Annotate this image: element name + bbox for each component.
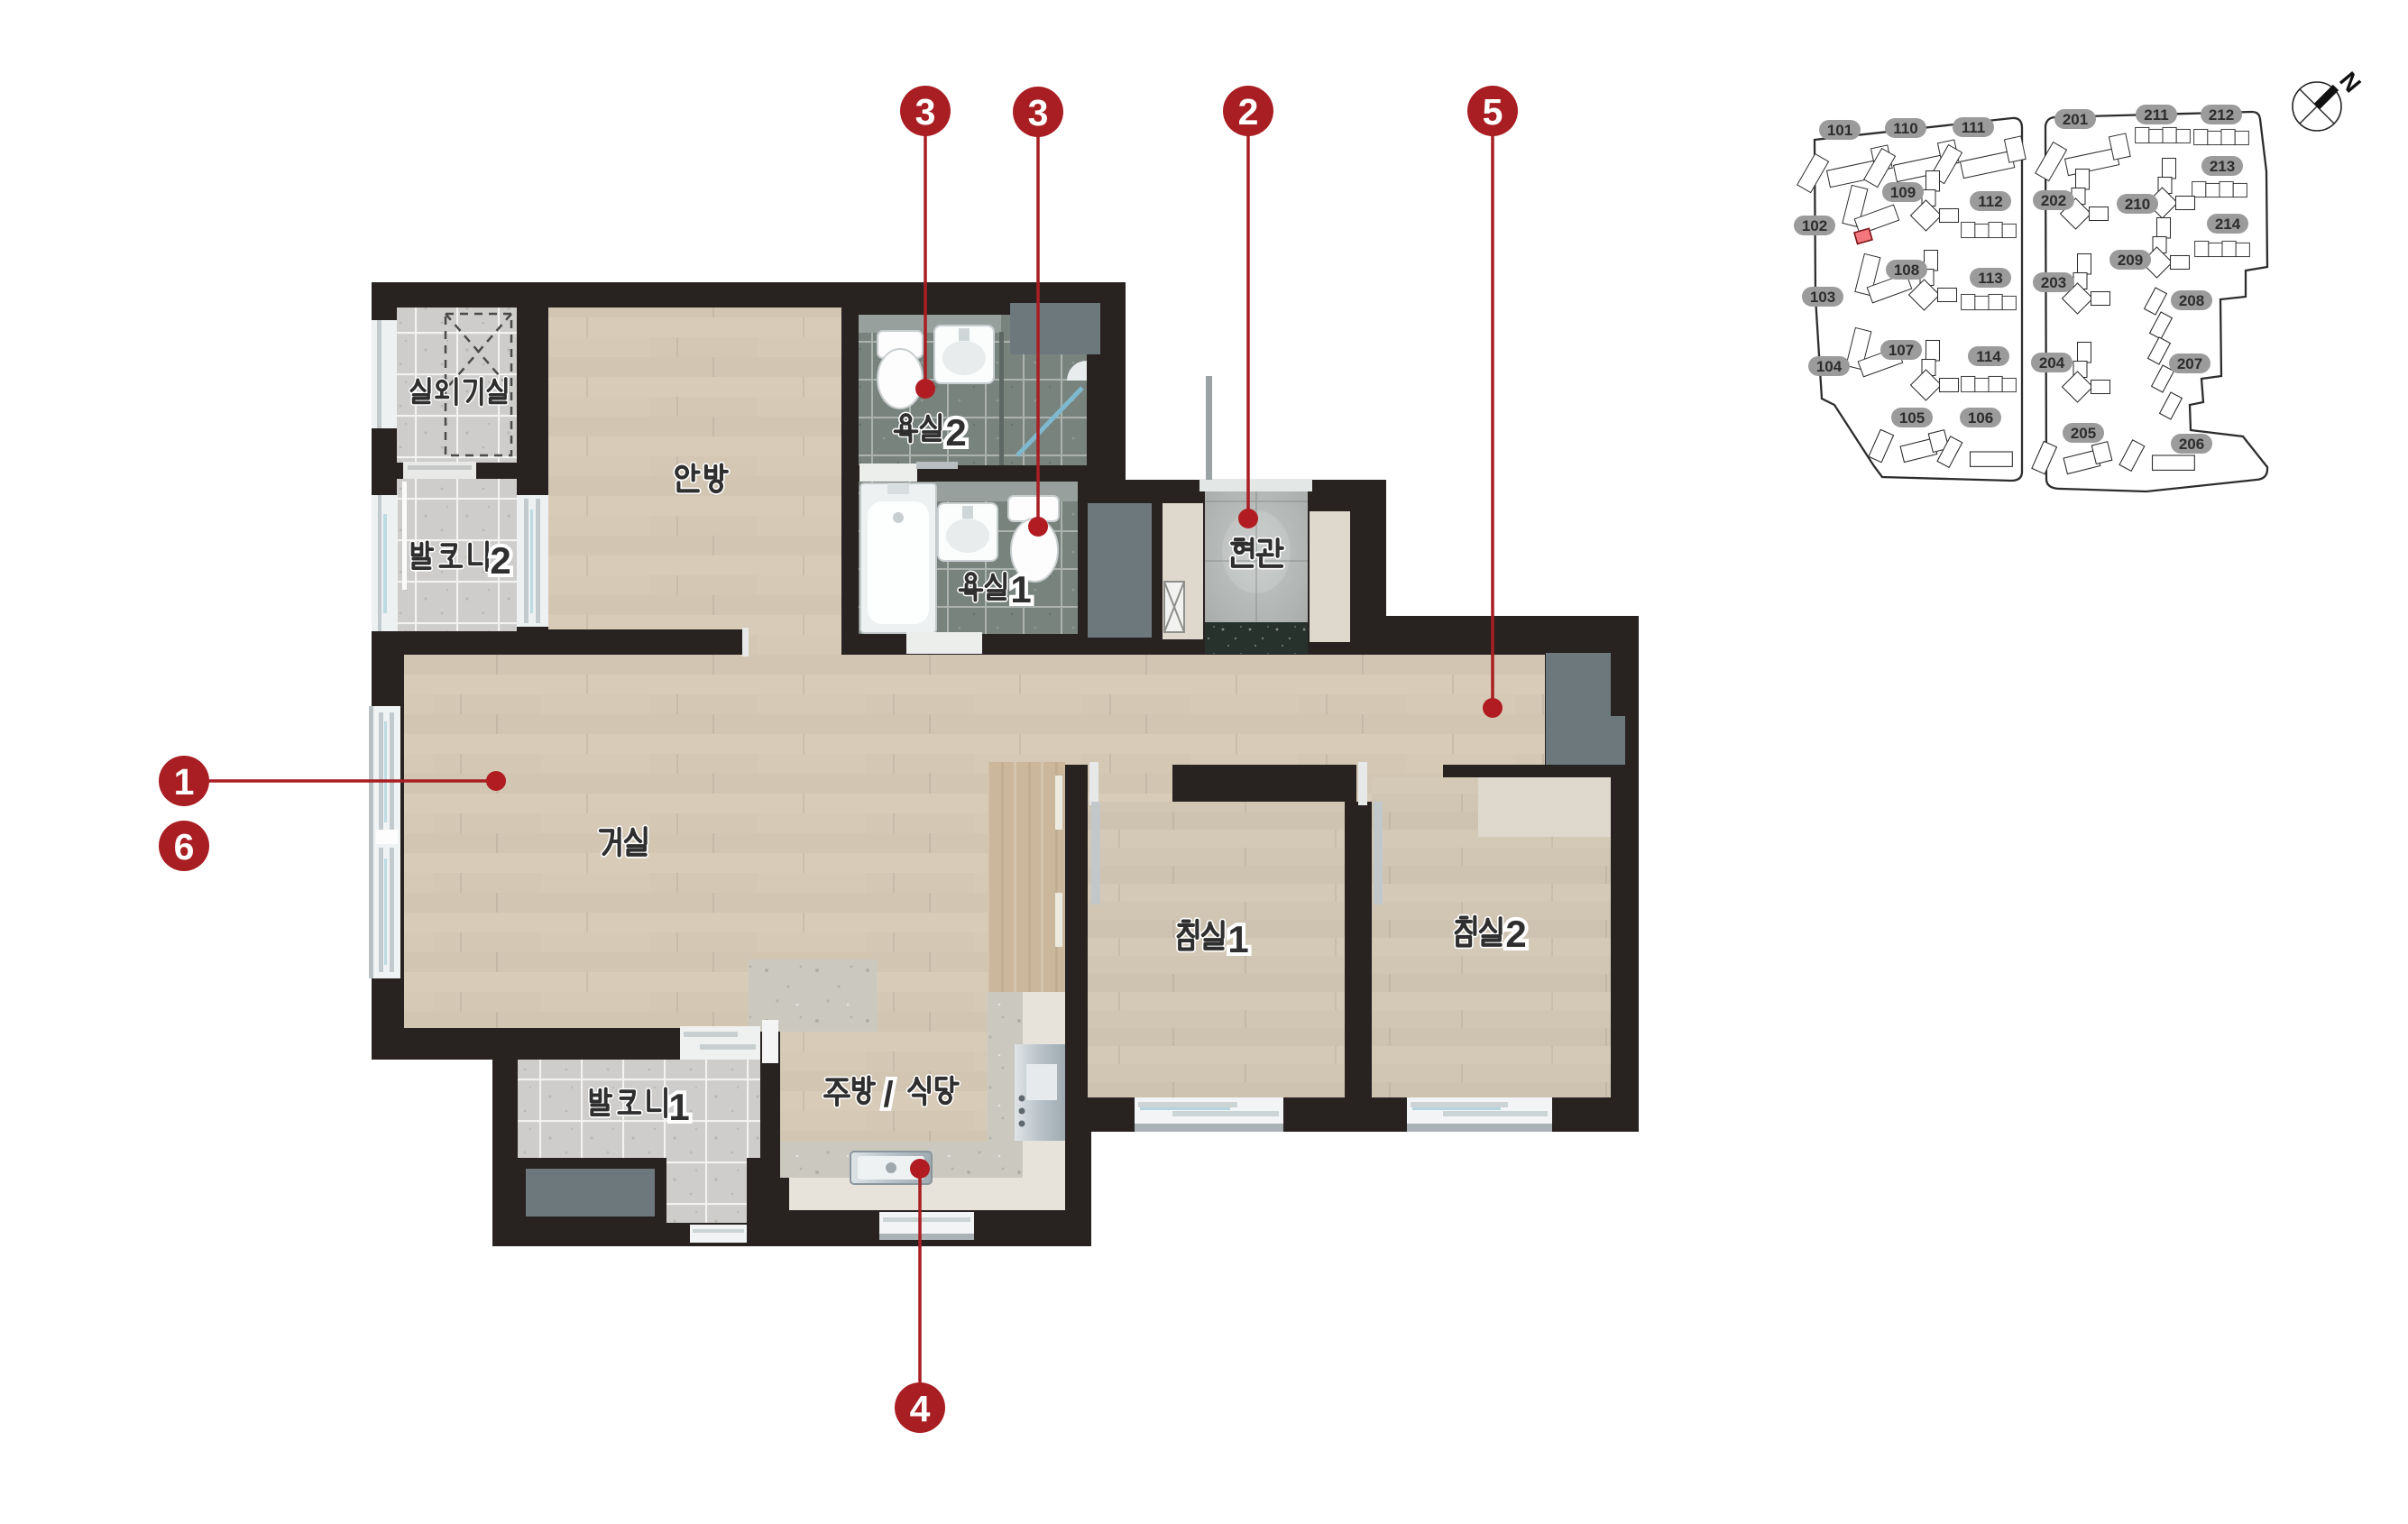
svg-text:106: 106: [1968, 409, 1993, 427]
svg-text:204: 204: [2039, 354, 2065, 372]
svg-text:207: 207: [2177, 355, 2202, 372]
svg-text:206: 206: [2179, 436, 2204, 453]
svg-text:2: 2: [490, 539, 510, 582]
svg-text:102: 102: [1802, 217, 1827, 234]
svg-text:210: 210: [2125, 196, 2150, 213]
svg-text:103: 103: [1810, 289, 1835, 306]
svg-text:111: 111: [1962, 119, 1986, 136]
svg-text:105: 105: [1899, 409, 1925, 427]
svg-text:205: 205: [2071, 425, 2096, 442]
svg-text:208: 208: [2179, 292, 2204, 309]
svg-text:N: N: [2334, 67, 2367, 97]
svg-text:6: 6: [174, 826, 195, 868]
svg-text:3: 3: [1028, 92, 1049, 133]
svg-text:201: 201: [2063, 111, 2088, 128]
svg-text:112: 112: [1978, 193, 2002, 210]
svg-text:114: 114: [1976, 348, 2001, 365]
svg-text:1: 1: [668, 1086, 689, 1128]
svg-text:211: 211: [2144, 106, 2168, 124]
svg-text:108: 108: [1894, 262, 1919, 279]
svg-text:107: 107: [1889, 342, 1914, 359]
svg-text:/: /: [883, 1075, 893, 1115]
svg-text:202: 202: [2041, 192, 2066, 209]
svg-text:213: 213: [2210, 158, 2235, 175]
svg-text:2: 2: [1238, 91, 1259, 133]
svg-text:2: 2: [1505, 913, 1526, 955]
svg-text:4: 4: [910, 1388, 931, 1429]
svg-text:2: 2: [945, 411, 966, 454]
svg-text:214: 214: [2215, 216, 2241, 233]
svg-text:1: 1: [1010, 568, 1031, 611]
svg-text:203: 203: [2041, 274, 2066, 291]
svg-text:104: 104: [1816, 358, 1843, 375]
svg-text:101: 101: [1827, 122, 1852, 139]
svg-text:3: 3: [915, 91, 936, 133]
svg-text:1: 1: [174, 761, 195, 803]
svg-text:209: 209: [2118, 252, 2143, 269]
svg-text:5: 5: [1483, 91, 1503, 133]
svg-text:212: 212: [2209, 106, 2234, 124]
svg-text:1: 1: [1227, 918, 1248, 960]
svg-text:113: 113: [1978, 270, 2002, 287]
svg-text:109: 109: [1890, 184, 1916, 201]
svg-text:110: 110: [1893, 120, 1917, 137]
